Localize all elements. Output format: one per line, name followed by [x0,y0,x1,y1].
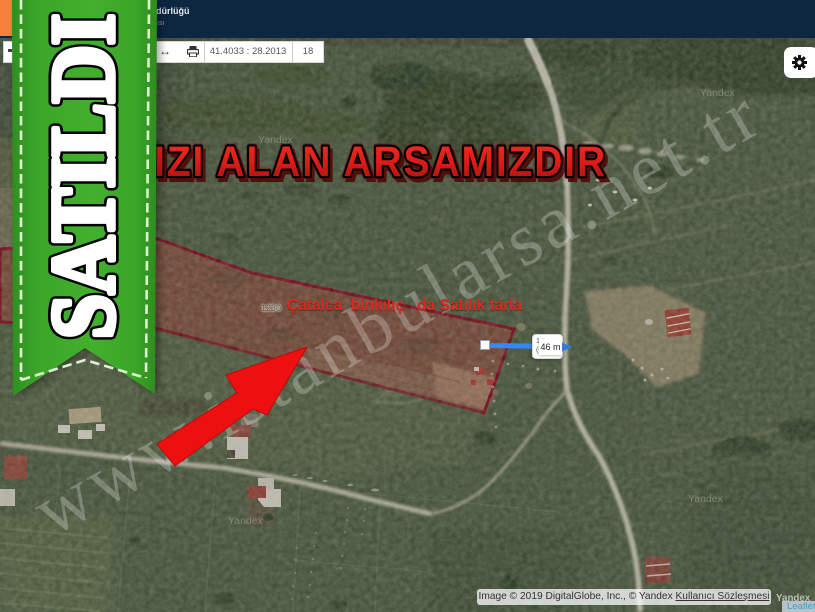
svg-text:Yandex: Yandex [688,493,724,505]
svg-text:SATILDI: SATILDI [34,14,133,339]
svg-text:Yandex: Yandex [228,515,264,527]
